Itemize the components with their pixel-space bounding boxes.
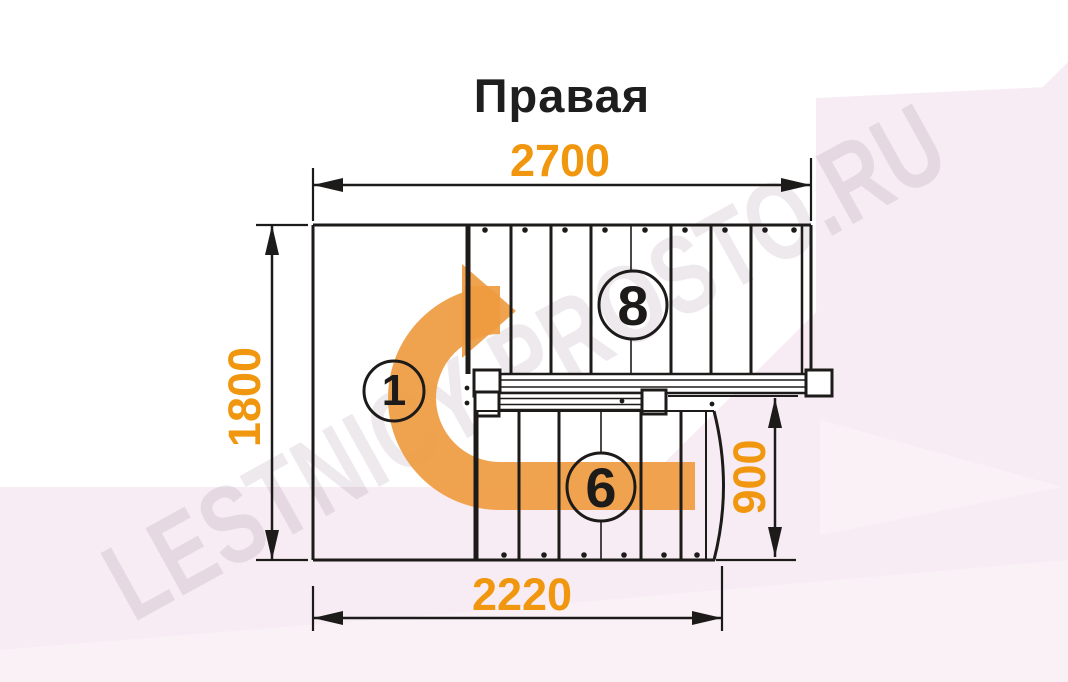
lower-flight-step-count: 6: [561, 459, 641, 517]
stair-plan-diagram: LESTNICY-PROSTO.RU: [0, 0, 1068, 682]
first-step-number: 1: [354, 367, 434, 415]
dimension-label-left: 1800: [222, 297, 268, 497]
dimension-label-top: 2700: [460, 135, 660, 187]
page-title: Правая: [382, 68, 742, 123]
dimension-label-right: 900: [727, 397, 773, 557]
dimension-label-bottom: 2220: [422, 569, 622, 621]
upper-flight-step-count: 8: [593, 277, 673, 335]
